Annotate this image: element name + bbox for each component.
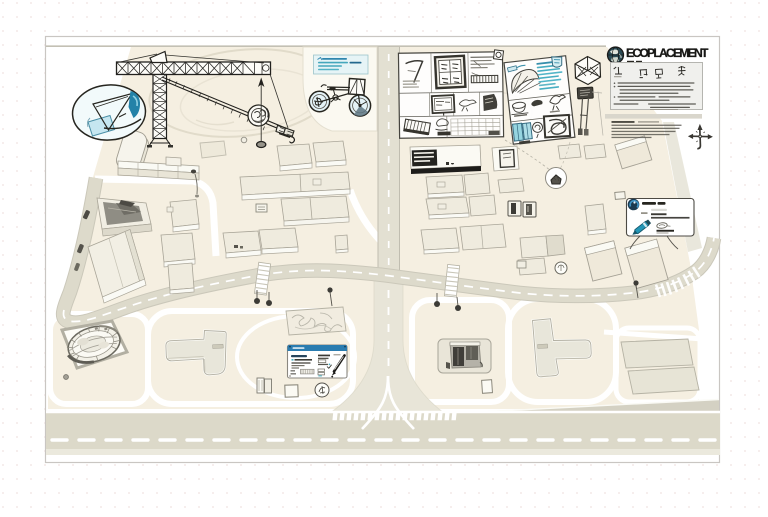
svg-text:ECOPLACEMENT: ECOPLACEMENT <box>626 46 709 60</box>
